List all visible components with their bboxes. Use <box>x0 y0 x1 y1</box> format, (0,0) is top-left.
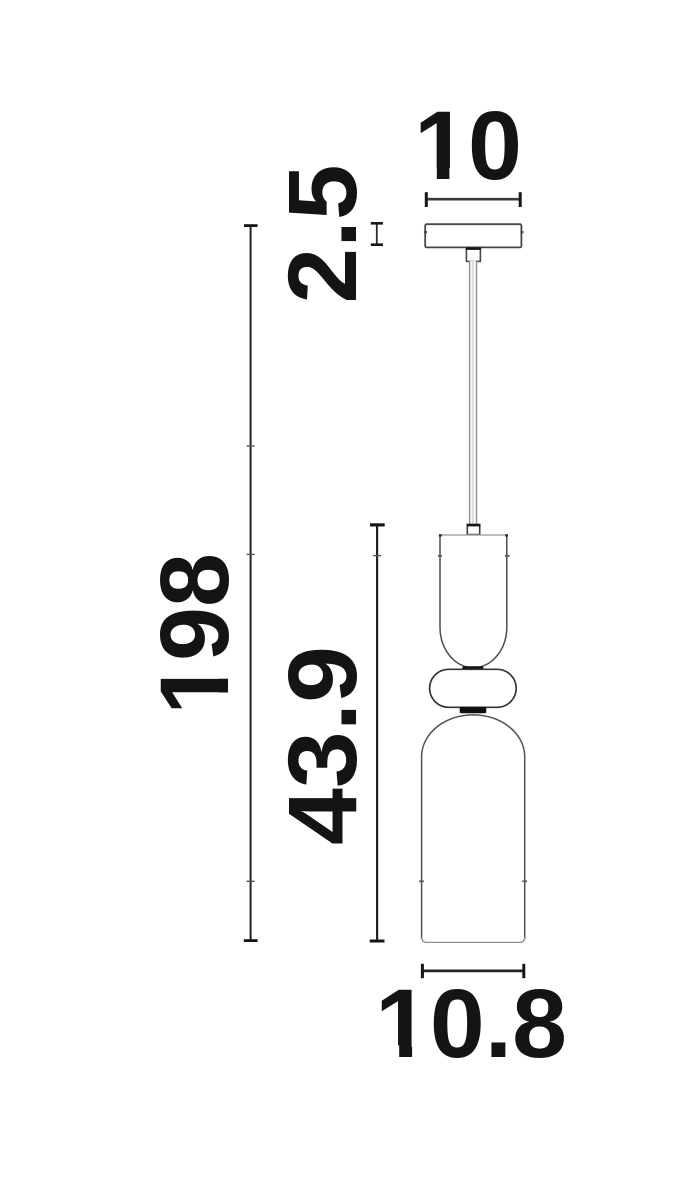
svg-text:198: 198 <box>140 553 249 715</box>
svg-text:10: 10 <box>414 91 522 200</box>
svg-text:43.9: 43.9 <box>268 646 377 845</box>
svg-text:2.5: 2.5 <box>268 165 377 304</box>
svg-text:10.8: 10.8 <box>375 969 567 1078</box>
